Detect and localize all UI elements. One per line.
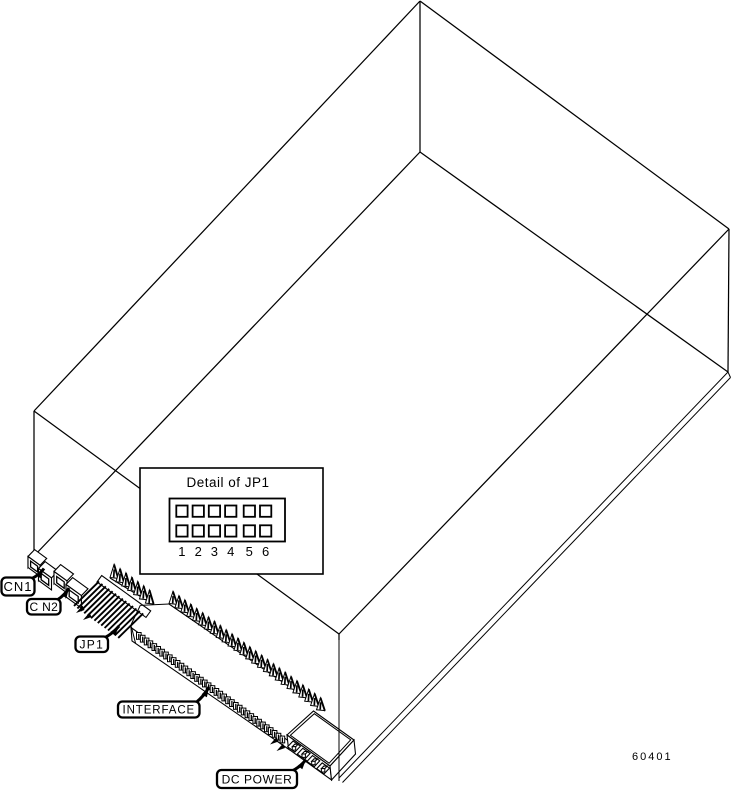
- svg-text:1: 1: [178, 544, 185, 559]
- svg-text:C N2: C N2: [30, 600, 59, 614]
- svg-text:4: 4: [227, 544, 234, 559]
- svg-text:3: 3: [211, 544, 218, 559]
- svg-text:60401: 60401: [632, 751, 673, 763]
- svg-text:Detail of JP1: Detail of JP1: [186, 475, 269, 490]
- svg-text:6: 6: [262, 544, 269, 559]
- svg-text:5: 5: [246, 544, 253, 559]
- svg-text:2: 2: [195, 544, 202, 559]
- svg-text:CN1: CN1: [3, 579, 32, 594]
- svg-text:DC POWER: DC POWER: [222, 772, 293, 786]
- svg-text:INTERFACE: INTERFACE: [122, 705, 195, 717]
- svg-text:JP1: JP1: [80, 638, 105, 652]
